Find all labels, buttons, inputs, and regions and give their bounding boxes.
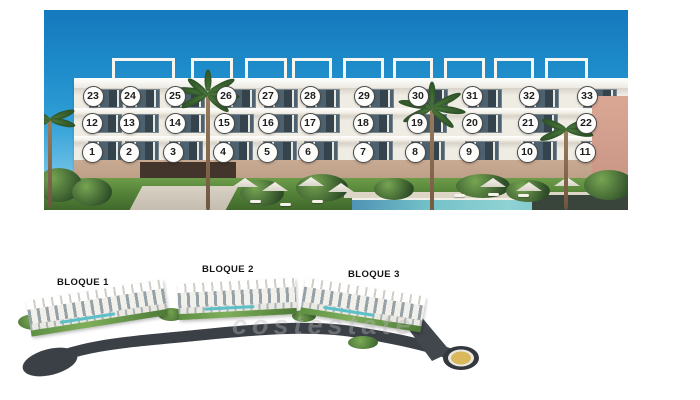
unit-marker-23: 23 bbox=[83, 86, 104, 107]
sun-lounger bbox=[454, 194, 465, 197]
unit-marker-2: 2 bbox=[119, 142, 140, 163]
unit-marker-29: 29 bbox=[354, 86, 375, 107]
unit-marker-21: 21 bbox=[518, 113, 539, 134]
bloque-1-label: BLOQUE 1 bbox=[57, 277, 109, 288]
building-facade-render: 1234567891011121314151617181920212223242… bbox=[44, 10, 628, 210]
unit-marker-19: 19 bbox=[407, 113, 428, 134]
sun-lounger bbox=[488, 193, 499, 196]
roof-pergola bbox=[112, 58, 175, 80]
roof-pergola bbox=[444, 58, 485, 80]
roof-pergola bbox=[292, 58, 332, 80]
unit-marker-11: 11 bbox=[575, 142, 596, 163]
roof-pergola bbox=[494, 58, 534, 80]
unit-marker-7: 7 bbox=[353, 142, 374, 163]
roof-pergola bbox=[545, 58, 588, 80]
unit-marker-32: 32 bbox=[519, 86, 540, 107]
unit-marker-15: 15 bbox=[214, 113, 235, 134]
unit-marker-24: 24 bbox=[120, 86, 141, 107]
unit-marker-13: 13 bbox=[119, 113, 140, 134]
roof-pergola bbox=[393, 58, 433, 80]
bush bbox=[374, 178, 414, 200]
roundabout bbox=[451, 352, 471, 365]
unit-marker-31: 31 bbox=[462, 86, 483, 107]
unit-marker-9: 9 bbox=[459, 142, 480, 163]
unit-marker-20: 20 bbox=[462, 113, 483, 134]
unit-marker-28: 28 bbox=[300, 86, 321, 107]
site-plan-render: BLOQUE 1 BLOQUE 2 BLOQUE 3 costestate bbox=[10, 262, 490, 392]
unit-marker-10: 10 bbox=[517, 142, 538, 163]
unit-marker-1: 1 bbox=[82, 142, 103, 163]
unit-marker-5: 5 bbox=[257, 142, 278, 163]
bush bbox=[72, 178, 112, 206]
unit-marker-25: 25 bbox=[165, 86, 186, 107]
unit-marker-33: 33 bbox=[577, 86, 598, 107]
roof-pergola bbox=[191, 58, 233, 80]
sun-lounger bbox=[280, 203, 291, 206]
sun-lounger bbox=[312, 200, 323, 203]
unit-marker-8: 8 bbox=[405, 142, 426, 163]
unit-marker-26: 26 bbox=[216, 86, 237, 107]
unit-marker-17: 17 bbox=[300, 113, 321, 134]
sun-lounger bbox=[518, 194, 529, 197]
unit-marker-16: 16 bbox=[258, 113, 279, 134]
unit-marker-6: 6 bbox=[298, 142, 319, 163]
watermark: costestate bbox=[232, 310, 416, 341]
bush bbox=[584, 170, 628, 200]
bloque-3-label: BLOQUE 3 bbox=[348, 269, 400, 280]
garden-path bbox=[130, 186, 239, 210]
unit-marker-4: 4 bbox=[213, 142, 234, 163]
sun-lounger bbox=[250, 200, 261, 203]
unit-marker-27: 27 bbox=[258, 86, 279, 107]
roof-pergola bbox=[343, 58, 384, 80]
unit-marker-3: 3 bbox=[163, 142, 184, 163]
roof-pergola bbox=[245, 58, 287, 80]
unit-marker-12: 12 bbox=[82, 113, 103, 134]
unit-marker-14: 14 bbox=[165, 113, 186, 134]
page: 1234567891011121314151617181920212223242… bbox=[0, 0, 700, 400]
unit-marker-30: 30 bbox=[408, 86, 429, 107]
unit-marker-18: 18 bbox=[353, 113, 374, 134]
unit-marker-22: 22 bbox=[576, 113, 597, 134]
roof-parapet bbox=[74, 78, 628, 88]
bloque-2-label: BLOQUE 2 bbox=[202, 264, 254, 275]
